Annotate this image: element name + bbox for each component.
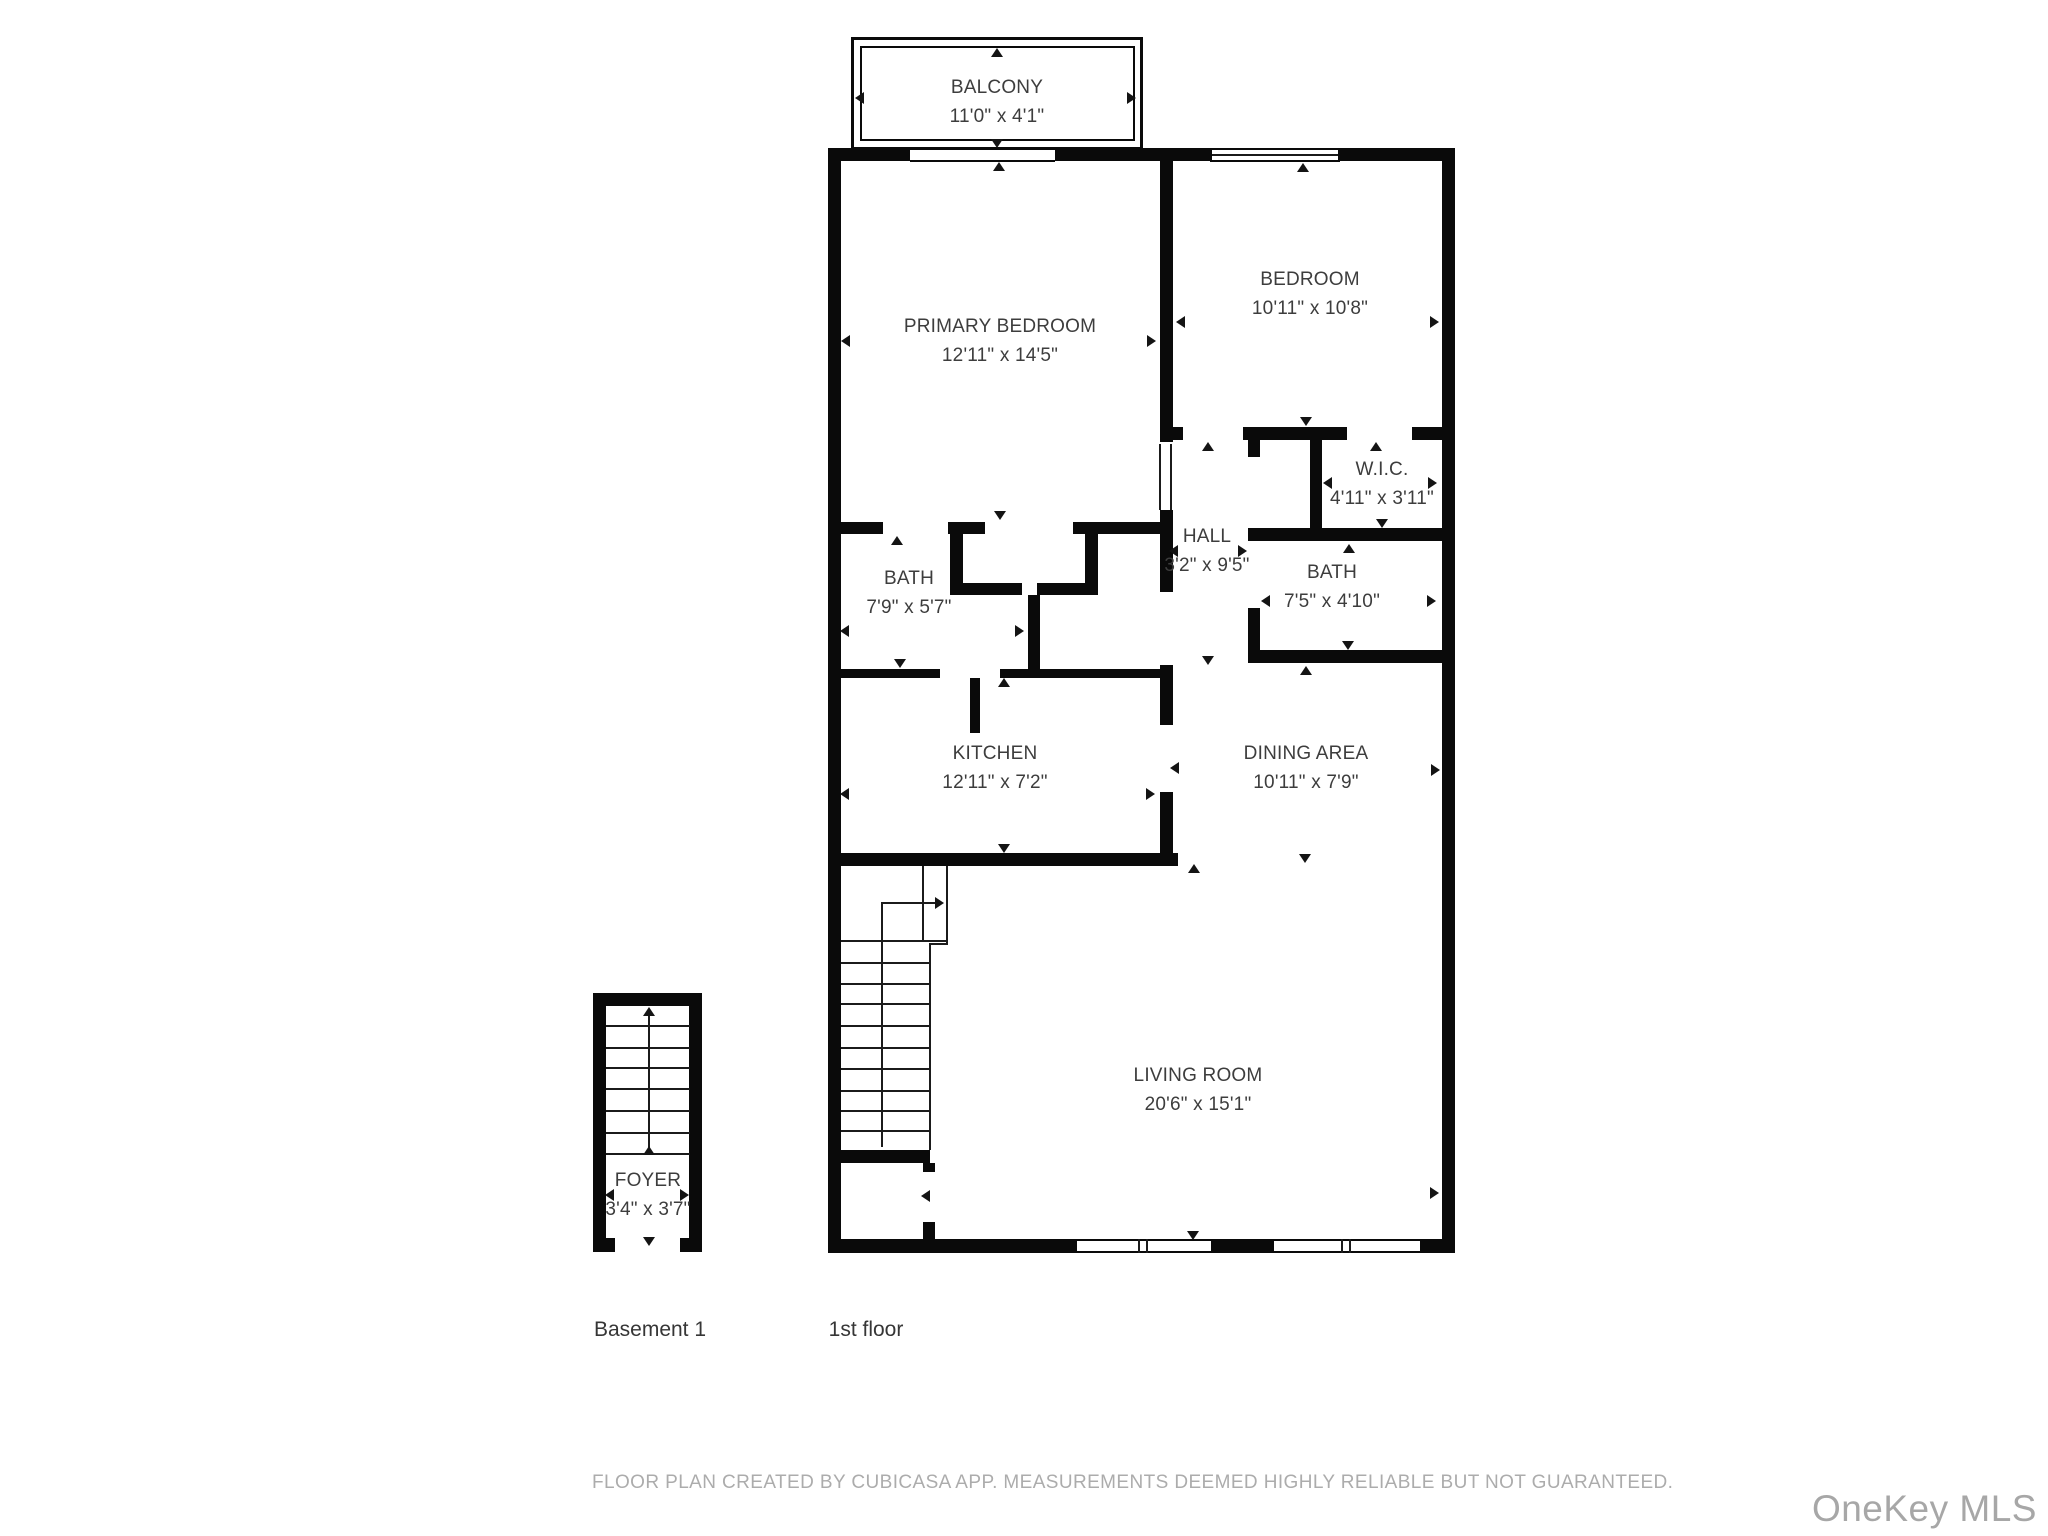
direction-marker xyxy=(994,511,1006,520)
wall-segment xyxy=(593,993,606,1252)
stair-edge-line xyxy=(929,943,948,945)
wall-segment xyxy=(841,669,940,678)
wall-segment xyxy=(828,853,1178,866)
direction-marker xyxy=(643,1007,655,1016)
wall-segment xyxy=(689,993,702,1252)
room-dims: 12'11" x 14'5" xyxy=(904,341,1096,370)
stair-tread xyxy=(841,983,929,985)
wall-segment xyxy=(923,1163,935,1172)
direction-marker xyxy=(1261,595,1270,607)
direction-marker xyxy=(991,139,1003,148)
room-dims: 10'11" x 10'8" xyxy=(1252,294,1368,323)
room-name: BATH xyxy=(1284,558,1380,587)
room-label-wic: W.I.C. 4'11" x 3'11" xyxy=(1330,455,1434,513)
room-label-primary-bedroom: PRIMARY BEDROOM 12'11" x 14'5" xyxy=(904,312,1096,370)
direction-marker xyxy=(1202,442,1214,451)
direction-marker xyxy=(643,1237,655,1246)
floor-caption-basement: Basement 1 xyxy=(594,1318,706,1342)
stair-tread xyxy=(841,1003,929,1005)
room-dims: 12'11" x 7'2" xyxy=(942,768,1047,797)
direction-marker xyxy=(993,162,1005,171)
wall-segment xyxy=(1160,161,1173,442)
direction-marker xyxy=(998,678,1010,687)
direction-marker xyxy=(894,659,906,668)
direction-marker xyxy=(1170,762,1179,774)
wall-segment xyxy=(1160,427,1183,440)
stair-edge-line xyxy=(946,866,948,945)
room-dims: 3'2" x 9'5" xyxy=(1164,551,1249,580)
direction-marker xyxy=(1202,656,1214,665)
room-dims: 7'9" x 5'7" xyxy=(866,593,951,622)
direction-marker xyxy=(1431,764,1440,776)
direction-marker xyxy=(891,536,903,545)
room-label-dining-area: DINING AREA 10'11" x 7'9" xyxy=(1244,739,1369,797)
direction-marker xyxy=(840,625,849,637)
room-name: KITCHEN xyxy=(942,739,1047,768)
wall-segment xyxy=(1055,148,1210,161)
room-name: DINING AREA xyxy=(1244,739,1369,768)
wall-segment xyxy=(1248,650,1442,663)
room-dims: 3'4" x 3'7" xyxy=(605,1195,690,1224)
direction-marker xyxy=(991,48,1003,57)
disclaimer-text: FLOOR PLAN CREATED BY CUBICASA APP. MEAS… xyxy=(592,1472,1673,1494)
wall-segment xyxy=(1028,595,1040,678)
direction-marker xyxy=(1188,864,1200,873)
stair-edge-line xyxy=(929,943,931,1150)
direction-marker xyxy=(643,1146,655,1155)
wall-segment xyxy=(828,1239,1075,1253)
direction-marker xyxy=(1342,641,1354,650)
stair-landing-line xyxy=(841,940,948,942)
direction-marker xyxy=(1343,544,1355,553)
wall-segment xyxy=(1310,440,1322,528)
direction-marker xyxy=(1430,1187,1439,1199)
stair-tread xyxy=(841,962,929,964)
room-dims: 10'11" x 7'9" xyxy=(1244,768,1369,797)
wall-segment xyxy=(593,1238,615,1252)
direction-marker xyxy=(1376,519,1388,528)
wall-segment xyxy=(828,1150,930,1163)
window-mullion xyxy=(1138,1239,1140,1253)
room-dims: 20'6" x 15'1" xyxy=(1134,1090,1263,1119)
direction-marker xyxy=(1147,335,1156,347)
direction-marker xyxy=(1300,666,1312,675)
room-label-foyer: FOYER 3'4" x 3'7" xyxy=(605,1166,690,1224)
direction-marker xyxy=(1187,1231,1199,1240)
wall-segment xyxy=(1248,528,1442,541)
stair-tread xyxy=(841,1068,929,1070)
wall-segment xyxy=(970,678,980,733)
stair-tread xyxy=(841,1047,929,1049)
door-jamb-line xyxy=(1170,444,1172,510)
floor-caption-first-floor: 1st floor xyxy=(829,1318,904,1342)
stair-direction-line xyxy=(881,902,938,904)
wall-segment xyxy=(923,1222,935,1239)
living-room-window xyxy=(1075,1239,1213,1253)
direction-marker xyxy=(1176,316,1185,328)
room-name: PRIMARY BEDROOM xyxy=(904,312,1096,341)
direction-marker xyxy=(1299,854,1311,863)
room-name: W.I.C. xyxy=(1330,455,1434,484)
stair-tread xyxy=(841,1025,929,1027)
room-name: HALL xyxy=(1164,522,1249,551)
wall-segment xyxy=(1442,148,1455,1252)
room-label-bedroom: BEDROOM 10'11" x 10'8" xyxy=(1252,265,1368,323)
door-jamb-line xyxy=(1159,444,1161,510)
direction-marker xyxy=(935,897,944,909)
direction-marker xyxy=(921,1190,930,1202)
wall-segment xyxy=(1248,427,1260,457)
stair-direction-line xyxy=(648,1012,650,1153)
wall-segment xyxy=(1213,1239,1272,1253)
room-label-living-room: LIVING ROOM 20'6" x 15'1" xyxy=(1134,1061,1263,1119)
wall-segment xyxy=(950,583,1022,595)
stair-tread xyxy=(841,1090,929,1092)
wall-segment xyxy=(1412,427,1442,440)
direction-marker xyxy=(855,92,864,104)
room-label-bath-primary: BATH 7'9" x 5'7" xyxy=(866,564,951,622)
room-dims: 4'11" x 3'11" xyxy=(1330,484,1434,513)
wall-segment xyxy=(1037,583,1098,595)
floor-plan-canvas: BALCONY 11'0" x 4'1" PRIMARY BEDROOM 12'… xyxy=(0,0,2048,1536)
direction-marker xyxy=(840,788,849,800)
room-label-kitchen: KITCHEN 12'11" x 7'2" xyxy=(942,739,1047,797)
wall-segment xyxy=(828,522,883,534)
room-name: BALCONY xyxy=(950,73,1045,102)
room-label-balcony: BALCONY 11'0" x 4'1" xyxy=(950,73,1045,131)
room-dims: 7'5" x 4'10" xyxy=(1284,587,1380,616)
room-name: FOYER xyxy=(605,1166,690,1195)
direction-marker xyxy=(1370,442,1382,451)
direction-marker xyxy=(1430,316,1439,328)
wall-segment xyxy=(828,148,841,1252)
room-name: LIVING ROOM xyxy=(1134,1061,1263,1090)
stair-tread xyxy=(841,1110,929,1112)
direction-marker xyxy=(1300,417,1312,426)
window-mullion xyxy=(1349,1239,1351,1253)
direction-marker xyxy=(841,335,850,347)
direction-marker xyxy=(1146,788,1155,800)
room-label-bath-hall: BATH 7'5" x 4'10" xyxy=(1284,558,1380,616)
wall-segment xyxy=(1248,608,1260,650)
room-label-hall: HALL 3'2" x 9'5" xyxy=(1164,522,1249,580)
watermark-text: OneKey MLS xyxy=(1812,1488,2037,1530)
window-mullion xyxy=(1146,1239,1148,1253)
stair-direction-line xyxy=(881,903,883,1147)
direction-marker xyxy=(1297,163,1309,172)
direction-marker xyxy=(1015,625,1024,637)
wall-segment xyxy=(593,993,702,1006)
bedroom-window-mullion xyxy=(1212,154,1338,156)
living-room-window xyxy=(1272,1239,1422,1253)
wall-segment xyxy=(1422,1239,1455,1253)
stair-tread xyxy=(841,1130,929,1132)
direction-marker xyxy=(1427,595,1436,607)
wall-segment xyxy=(1000,669,1163,678)
room-name: BATH xyxy=(866,564,951,593)
wall-segment xyxy=(680,1238,702,1252)
room-dims: 11'0" x 4'1" xyxy=(950,102,1045,131)
wall-segment xyxy=(1340,148,1455,161)
room-name: BEDROOM xyxy=(1252,265,1368,294)
direction-marker xyxy=(1127,92,1136,104)
window-mullion xyxy=(1341,1239,1343,1253)
direction-marker xyxy=(998,844,1010,853)
balcony-door-opening xyxy=(910,148,1055,162)
